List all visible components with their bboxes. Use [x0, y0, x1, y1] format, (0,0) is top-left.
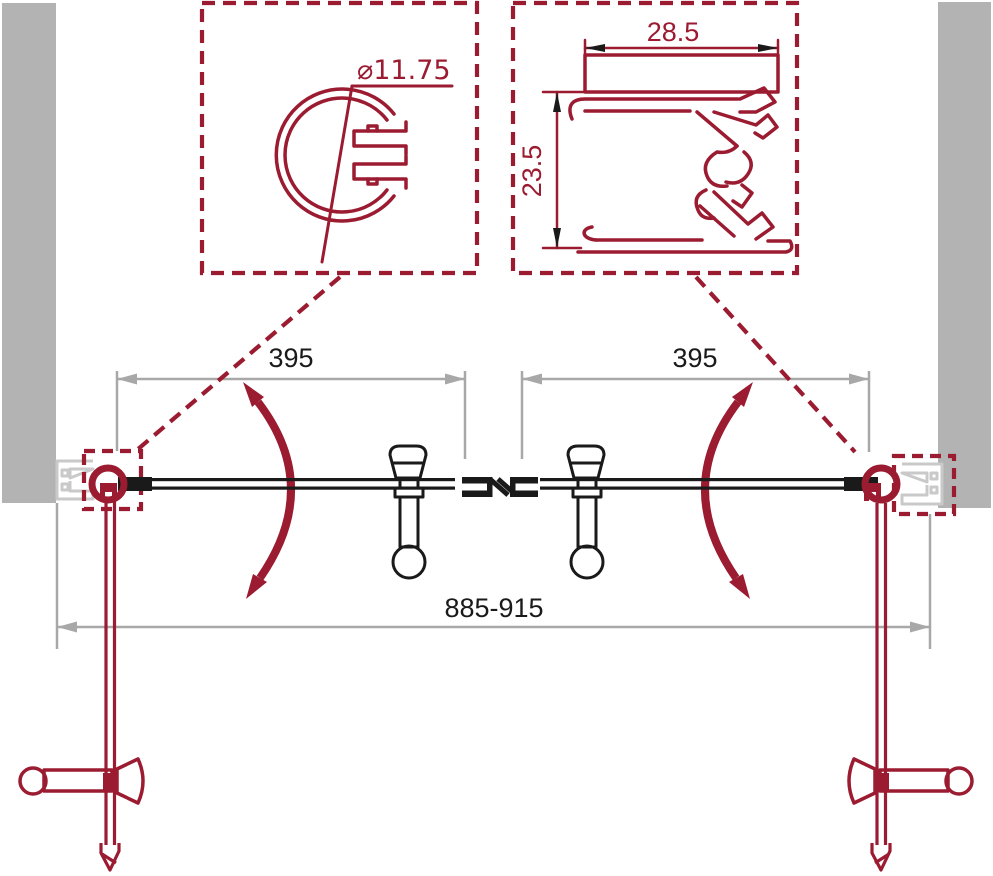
- arrow-up-icon: [553, 92, 561, 112]
- right-door-width-label: 395: [672, 343, 717, 373]
- handle-ball: [20, 768, 46, 794]
- clip-hook: [733, 185, 752, 207]
- callout-pivot-profile: ⌀11.75: [202, 3, 477, 273]
- open-door-left: [20, 500, 143, 870]
- arrow-right-icon: [849, 374, 869, 385]
- profile-height-label: 23.5: [517, 145, 547, 198]
- bottom-flange: [578, 241, 792, 252]
- knob-ball: [393, 546, 425, 578]
- bottom-flange-curl: [584, 227, 596, 240]
- arrow-left-icon: [522, 374, 542, 385]
- arrow-left-icon: [117, 374, 137, 385]
- knob-left: [390, 446, 426, 578]
- arrow-left-icon: [585, 44, 605, 52]
- knob-right: [568, 446, 604, 578]
- inner-ring: [285, 98, 387, 212]
- handle-left: [20, 759, 143, 803]
- arrow-right-icon: [445, 374, 465, 385]
- knob-flange: [395, 488, 423, 497]
- profile-width-label: 28.5: [647, 17, 700, 47]
- handle-mount: [875, 773, 889, 792]
- handle-bar: [44, 770, 112, 791]
- clip-edge-2: [700, 206, 734, 236]
- junction-bar: [510, 477, 538, 484]
- overall-width-label: 885-915: [444, 593, 543, 623]
- handle-ball: [946, 768, 972, 794]
- callout-wall-profile: 28.5 23.5: [513, 3, 797, 273]
- arrow-left-icon: [57, 622, 77, 633]
- door-panels-plan: [128, 446, 852, 578]
- upper-slot: [354, 122, 406, 154]
- glass-channel: [585, 55, 778, 92]
- knob-stem: [578, 497, 596, 547]
- door-bottom-tip: [101, 843, 119, 870]
- handle-cone: [117, 759, 143, 803]
- clip-curl-1: [705, 146, 737, 186]
- technical-drawing-canvas: 395 395 885-915 ⌀11.75: [0, 0, 993, 876]
- swing-arc-right: [705, 402, 738, 578]
- arrow-down-icon: [553, 228, 561, 248]
- pivot-tube-section-drawing: [276, 86, 452, 262]
- knob-flange: [573, 488, 601, 497]
- handle-mount: [103, 773, 117, 792]
- clip-curl-2: [726, 152, 751, 183]
- diameter-label: ⌀11.75: [357, 55, 451, 86]
- right-wall-profile: [902, 464, 942, 504]
- door-bottom-tip: [872, 843, 890, 870]
- slot-notches: [368, 126, 377, 184]
- handle-cone: [849, 759, 875, 803]
- left-wall: [2, 3, 56, 503]
- clip-lower: [714, 192, 773, 239]
- magnet-junction: [455, 475, 540, 497]
- right-wall: [938, 2, 991, 508]
- lower-slot: [354, 156, 406, 188]
- left-wall-profile: [57, 461, 93, 499]
- arrow-right-icon: [910, 622, 930, 633]
- drawing-svg: 395 395 885-915 ⌀11.75: [0, 0, 993, 876]
- handle-right: [849, 759, 972, 803]
- knob-ball: [571, 546, 603, 578]
- walls: [2, 2, 991, 508]
- callout-box-left: [202, 3, 477, 273]
- top-flange: [570, 99, 738, 119]
- left-door-width-label: 395: [268, 343, 313, 373]
- diameter-leader-diagonal: [322, 86, 352, 262]
- wall-profile-section-drawing: [543, 40, 792, 252]
- arrow-right-icon: [758, 44, 778, 52]
- handle-bar: [880, 770, 948, 791]
- swing-arc-left: [258, 402, 291, 578]
- open-door-right: [849, 503, 972, 870]
- knob-stem: [400, 497, 418, 547]
